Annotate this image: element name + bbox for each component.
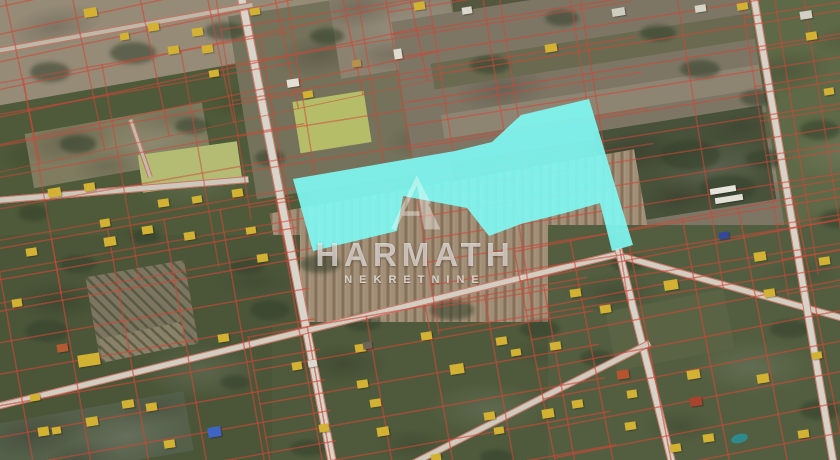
building [431, 453, 442, 460]
houses-layer [0, 0, 840, 460]
building [511, 348, 522, 356]
building [56, 343, 68, 353]
building [256, 253, 268, 263]
building [77, 352, 101, 367]
building [286, 78, 299, 88]
building [291, 361, 302, 370]
building [719, 231, 730, 239]
building [141, 225, 153, 235]
building [99, 218, 110, 227]
building [812, 351, 823, 359]
building [318, 423, 329, 432]
building [737, 2, 749, 11]
building [167, 45, 179, 55]
building [37, 426, 49, 437]
building [83, 7, 97, 18]
building [626, 389, 637, 398]
building [695, 4, 707, 13]
building [376, 426, 389, 437]
building [52, 426, 62, 434]
building [715, 194, 744, 204]
building [103, 236, 116, 247]
building [192, 195, 203, 203]
building [183, 231, 195, 241]
building [250, 7, 261, 15]
building [624, 421, 636, 431]
building [30, 393, 41, 401]
building [544, 43, 557, 53]
building [599, 304, 611, 314]
building [616, 369, 629, 380]
building [207, 426, 221, 438]
building [549, 341, 561, 351]
building [797, 429, 809, 439]
building [25, 247, 37, 257]
building [209, 69, 220, 77]
building [569, 288, 581, 298]
building [363, 341, 373, 349]
building [231, 188, 243, 198]
building [147, 22, 159, 32]
building [201, 44, 213, 54]
building [145, 402, 157, 412]
building [191, 27, 203, 37]
building [756, 373, 769, 384]
building [157, 198, 169, 208]
building [449, 363, 464, 375]
building [753, 251, 766, 262]
building [571, 399, 583, 409]
building [413, 1, 425, 11]
building [83, 182, 95, 192]
building [462, 6, 473, 14]
building [120, 32, 130, 40]
building [702, 433, 714, 443]
building [805, 31, 817, 41]
building [352, 59, 362, 67]
building [689, 396, 702, 407]
building [217, 333, 229, 343]
building [824, 87, 835, 95]
building [85, 416, 98, 427]
building [663, 279, 678, 291]
building [246, 226, 257, 234]
building [710, 185, 737, 195]
building [308, 359, 318, 367]
swimming-pool [730, 432, 749, 445]
building [611, 7, 625, 17]
building [686, 369, 700, 380]
building [494, 426, 505, 434]
building [163, 439, 175, 449]
building [818, 256, 830, 266]
building [799, 10, 812, 20]
building [303, 90, 314, 98]
building [393, 48, 402, 59]
building [11, 298, 22, 307]
building [495, 336, 507, 346]
building [669, 443, 681, 453]
building [356, 379, 368, 389]
building [483, 411, 495, 421]
aerial-map-image: HARMATH NEKRETNINE [0, 0, 840, 460]
building [47, 187, 61, 198]
building [121, 399, 134, 409]
building [763, 288, 775, 298]
building [541, 408, 554, 419]
building [369, 398, 381, 408]
building [420, 331, 432, 341]
